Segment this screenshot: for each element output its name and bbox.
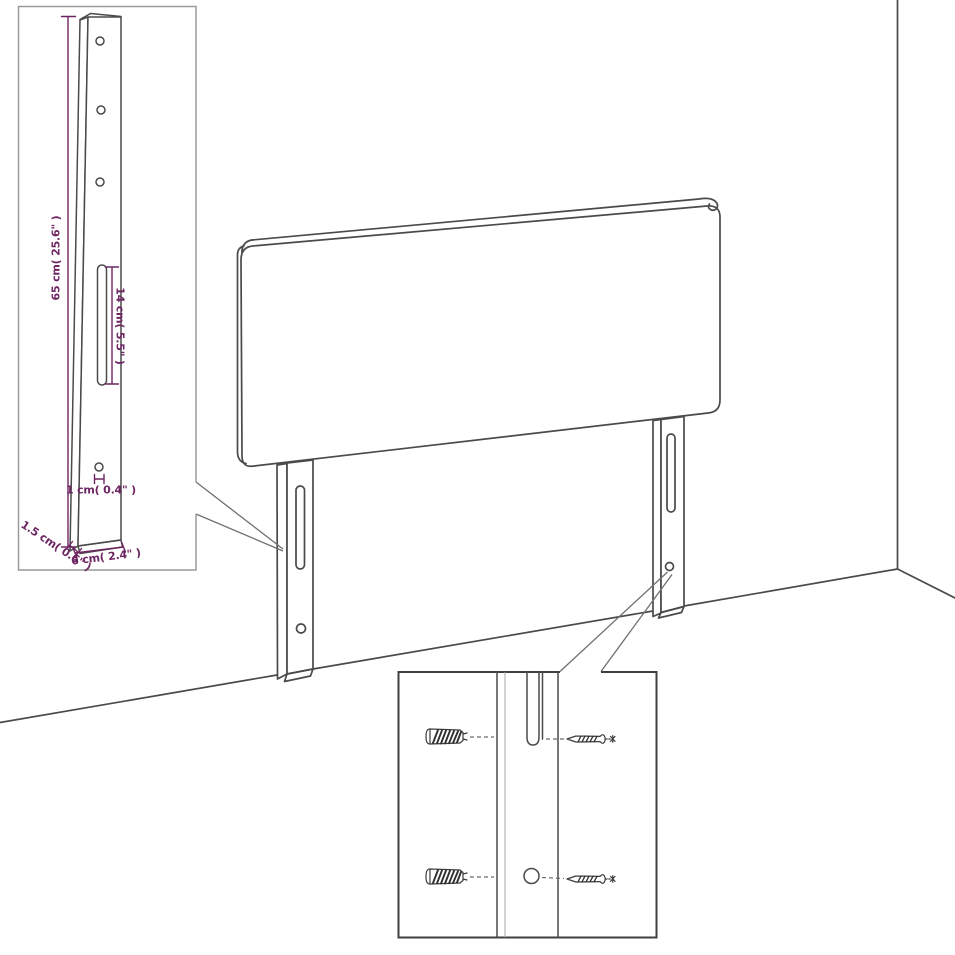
alignment-dashes-bottom xyxy=(470,877,564,879)
alignment-dashes-top xyxy=(470,737,564,739)
callout-inset-to-left-leg xyxy=(196,482,283,551)
headboard-panel xyxy=(241,206,720,466)
inset-hardware-detail xyxy=(399,672,657,938)
screw-bottom-icon xyxy=(567,875,615,884)
right-mounting-leg xyxy=(653,417,684,619)
floor-line-right xyxy=(898,569,955,598)
label-leg-height: 65 cm( 25.6" ) xyxy=(50,216,63,301)
right-leg-front-face xyxy=(661,417,684,613)
label-hole-diameter: 1 cm( 0.4" ) xyxy=(66,484,136,497)
right-leg-side-face xyxy=(653,420,661,617)
screw-top-icon xyxy=(567,735,615,744)
callout-lines xyxy=(196,482,672,672)
detail-slot xyxy=(527,672,543,745)
detail-hole xyxy=(524,869,539,884)
label-slot-length: 14 cm( 5.5" ) xyxy=(114,287,127,364)
wall-plug-bottom-icon xyxy=(426,869,467,884)
wall-plug-top-icon xyxy=(426,729,467,744)
left-mounting-leg xyxy=(277,460,313,682)
floor-line-left xyxy=(0,569,898,723)
left-leg-side-face xyxy=(277,464,287,680)
diagram-drawing xyxy=(0,0,955,955)
assembly-diagram: 65 cm( 25.6" ) 14 cm( 5.5" ) 1 cm( 0.4" … xyxy=(0,0,955,955)
left-leg-front-face xyxy=(287,460,313,674)
headboard xyxy=(238,198,721,466)
